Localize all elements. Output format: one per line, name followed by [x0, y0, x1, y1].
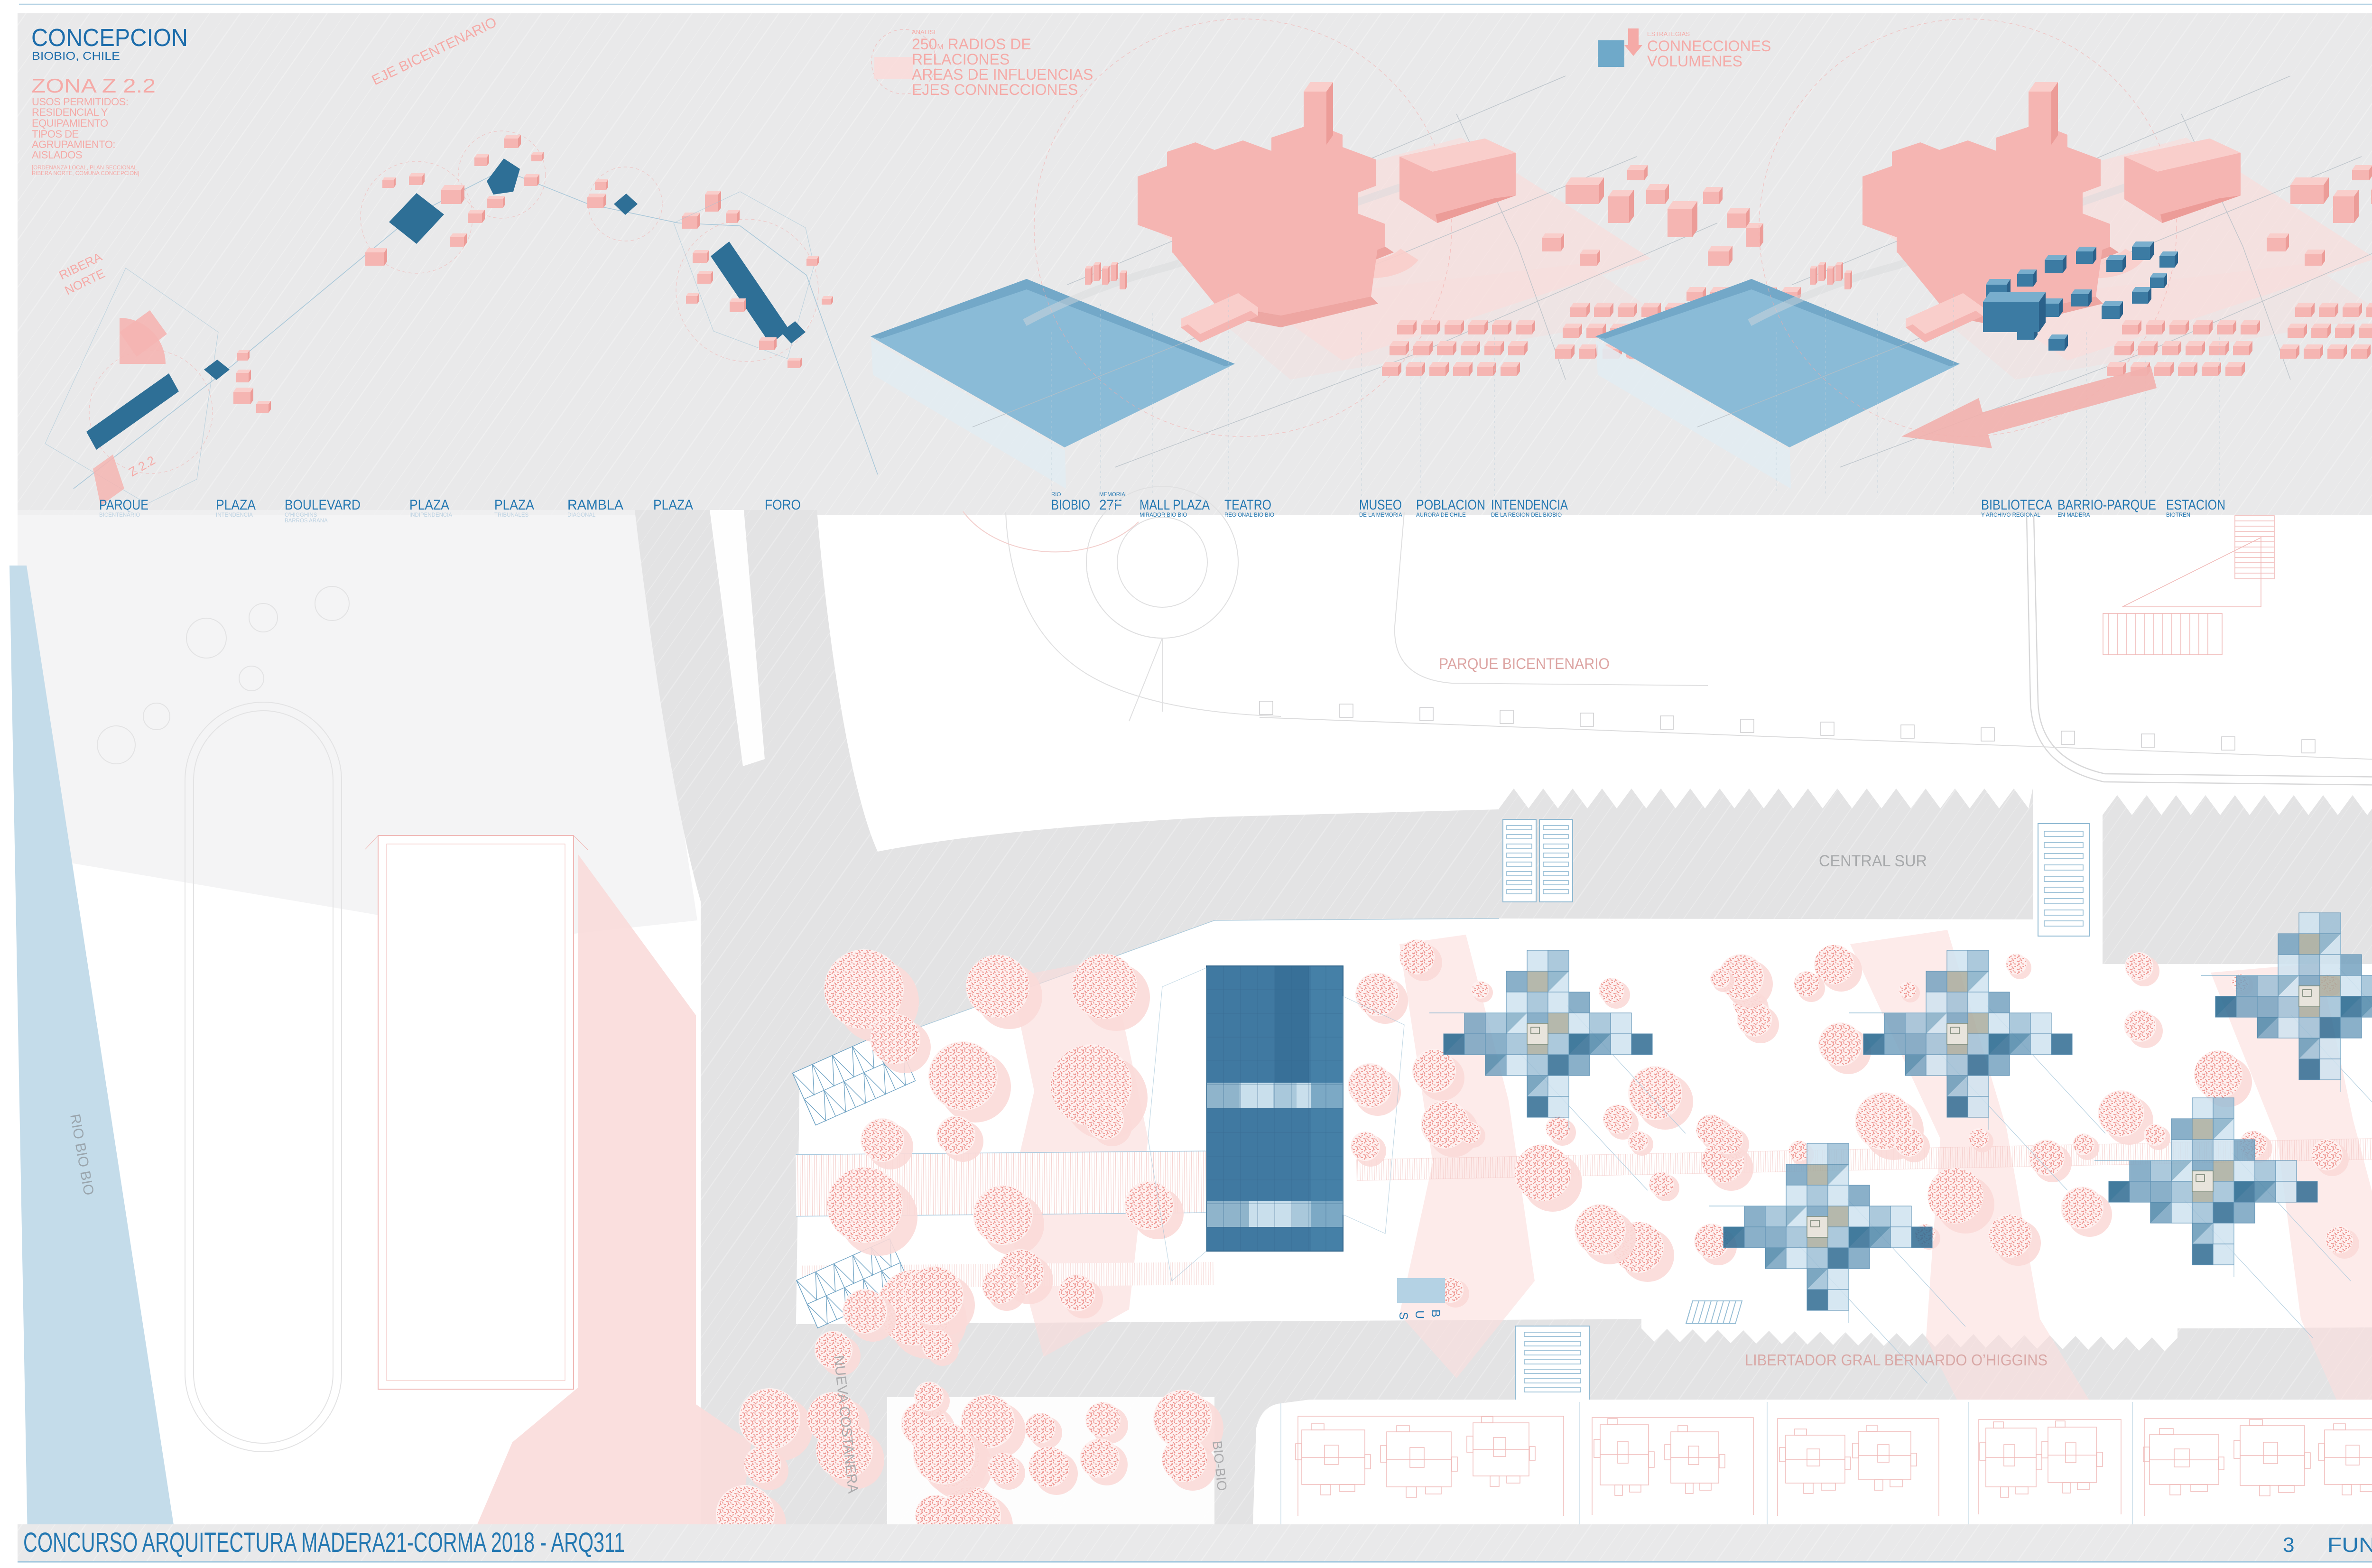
svg-text:CENTRAL SUR: CENTRAL SUR	[1819, 852, 1927, 870]
svg-text:EJES CONNECCIONES: EJES CONNECCIONES	[912, 81, 1078, 98]
svg-text:RELACIONES: RELACIONES	[912, 51, 1010, 68]
svg-text:AISLADOS: AISLADOS	[32, 149, 82, 161]
svg-text:250M RADIOS DE: 250M RADIOS DE	[912, 36, 1031, 53]
svg-text:ESTACION: ESTACION	[2166, 497, 2225, 513]
svg-text:BIBLIOTECA: BIBLIOTECA	[1981, 497, 2052, 513]
svg-text:AURORA DE CHILE: AURORA DE CHILE	[1416, 512, 1466, 518]
svg-text:MALL PLAZA: MALL PLAZA	[1140, 497, 1210, 513]
svg-text:INTENDENCIA: INTENDENCIA	[1491, 497, 1568, 513]
svg-text:FUNDAMENTO LUGAR Y PLANIMETRIA: FUNDAMENTO LUGAR Y PLANIMETRIA EMPLAZAMI…	[2327, 1533, 2372, 1557]
svg-text:ANALISI: ANALISI	[912, 28, 936, 36]
svg-text:BARRIO-PARQUE: BARRIO-PARQUE	[2057, 497, 2156, 513]
svg-text:RESIDENCIAL Y: RESIDENCIAL Y	[32, 106, 108, 118]
svg-text:B: B	[1429, 1309, 1442, 1317]
svg-text:BIOBIO: BIOBIO	[1051, 497, 1090, 513]
svg-text:27F: 27F	[1099, 497, 1122, 513]
svg-text:3: 3	[2283, 1533, 2294, 1557]
svg-text:CONNECCIONES: CONNECCIONES	[1647, 37, 1771, 55]
svg-text:PARQUE BICENTENARIO: PARQUE BICENTENARIO	[1439, 655, 1610, 672]
svg-text:EQUIPAMIENTO: EQUIPAMIENTO	[32, 117, 108, 129]
svg-text:CONCURSO ARQUITECTURA MADERA21: CONCURSO ARQUITECTURA MADERA21-CORMA 201…	[23, 1527, 625, 1558]
svg-text:BIOBIO, CHILE: BIOBIO, CHILE	[32, 50, 120, 63]
svg-text:U: U	[1413, 1310, 1426, 1319]
svg-text:DE LA MEMORIA: DE LA MEMORIA	[1359, 512, 1402, 518]
svg-text:POBLACION: POBLACION	[1416, 497, 1485, 513]
svg-text:ZONA Z 2.2: ZONA Z 2.2	[31, 74, 156, 97]
svg-text:CONCEPCION: CONCEPCION	[31, 24, 188, 52]
svg-text:RIBERA NORTE, COMUNA CONCEPCIO: RIBERA NORTE, COMUNA CONCEPCION]	[32, 171, 139, 176]
svg-text:MUSEO: MUSEO	[1359, 497, 1402, 513]
svg-text:BIOTREN: BIOTREN	[2166, 512, 2190, 518]
svg-text:LIBERTADOR GRAL BERNARDO O’HIG: LIBERTADOR GRAL BERNARDO O’HIGGINS	[1745, 1351, 2048, 1369]
svg-text:[ORDENANZA LOCAL, PLAN SECCION: [ORDENANZA LOCAL, PLAN SECCIONAL	[32, 165, 137, 171]
svg-text:EN MADERA: EN MADERA	[2057, 512, 2090, 518]
svg-text:Y ARCHIVO REGIONAL: Y ARCHIVO REGIONAL	[1981, 512, 2041, 518]
svg-text:TEATRO: TEATRO	[1224, 497, 1271, 513]
svg-text:VOLUMENES: VOLUMENES	[1647, 53, 1742, 70]
svg-text:ESTRATEGIAS: ESTRATEGIAS	[1647, 30, 1690, 37]
svg-text:REGIONAL BIO BIO: REGIONAL BIO BIO	[1224, 512, 1274, 518]
svg-text:S: S	[1397, 1312, 1410, 1320]
svg-text:AREAS DE INFLUENCIAS: AREAS DE INFLUENCIAS	[912, 66, 1093, 83]
svg-text:DE LA REGION DEL BIOBIO: DE LA REGION DEL BIOBIO	[1491, 512, 1562, 518]
